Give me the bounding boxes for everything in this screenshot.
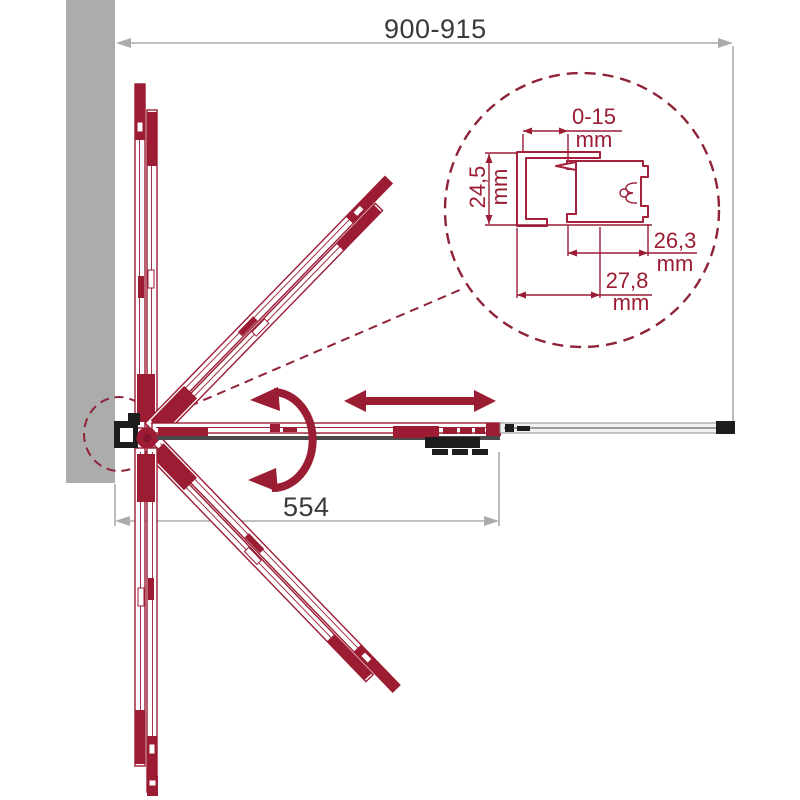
sliding-track (500, 421, 735, 434)
detail-top-gap-value: 0-15 (558, 106, 630, 128)
wall-mount-bracket (114, 413, 140, 448)
detail-top-gap-unit: mm (558, 129, 630, 151)
door-panel-open-horizontal (152, 423, 501, 455)
pivot-hub (137, 428, 158, 449)
diagram-drawing (0, 0, 800, 800)
detail-profile-depth-label: 24,5 mm (467, 143, 513, 231)
detail-wall-profile-width-unit: mm (602, 292, 660, 314)
panel-width-label: 554 (283, 492, 330, 523)
door-panel-folded-up (135, 84, 157, 428)
detail-wall-profile-width-value: 27,8 (598, 270, 656, 292)
slide-direction-arrow-icon (344, 390, 496, 412)
roller-carriage (425, 437, 480, 448)
track-end-cap (716, 421, 735, 434)
door-profile-outline (567, 161, 648, 222)
detail-profile-depth-unit: mm (489, 143, 511, 231)
door-panel-closed-down (135, 448, 158, 796)
detail-profile-depth-value: 24,5 (467, 143, 489, 231)
overall-width-label: 900-915 (384, 14, 487, 45)
detail-door-profile-width-value: 26,3 (646, 230, 704, 252)
installation-diagram: 900-915 554 0-15 mm 24,5 mm 26,3 mm 27,8… (0, 0, 800, 800)
